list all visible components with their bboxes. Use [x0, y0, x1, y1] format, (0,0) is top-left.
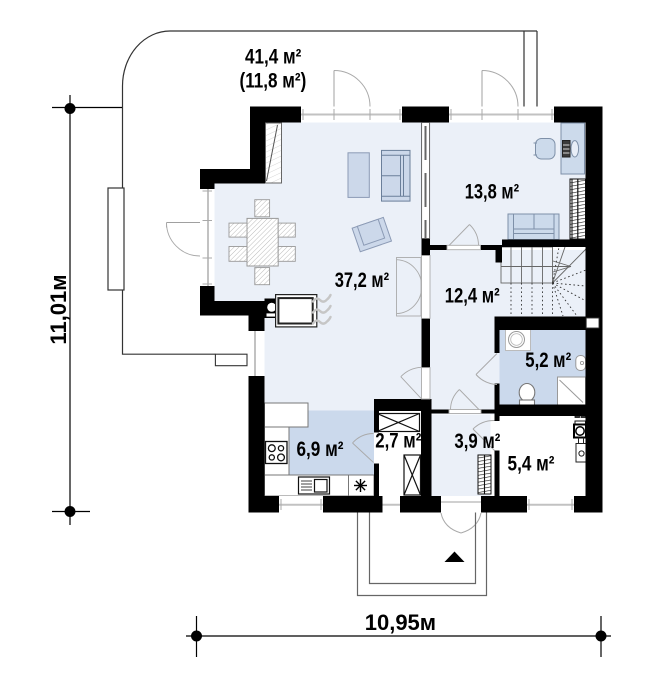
svg-text:2,7 м²: 2,7 м² [375, 429, 421, 452]
svg-text:37,2 м²: 37,2 м² [335, 269, 389, 292]
svg-text:11,01м: 11,01м [46, 274, 71, 344]
svg-text:13,8 м²: 13,8 м² [465, 181, 519, 204]
svg-text:3,9 м²: 3,9 м² [454, 430, 500, 453]
svg-text:(11,8 м²): (11,8 м²) [240, 69, 307, 92]
svg-text:5,2 м²: 5,2 м² [525, 349, 571, 372]
svg-text:41,4 м²: 41,4 м² [245, 45, 301, 68]
svg-text:6,9 м²: 6,9 м² [297, 438, 344, 461]
svg-text:5,4 м²: 5,4 м² [508, 452, 555, 475]
svg-text:10,95м: 10,95м [365, 610, 436, 635]
svg-text:12,4 м²: 12,4 м² [445, 284, 500, 307]
